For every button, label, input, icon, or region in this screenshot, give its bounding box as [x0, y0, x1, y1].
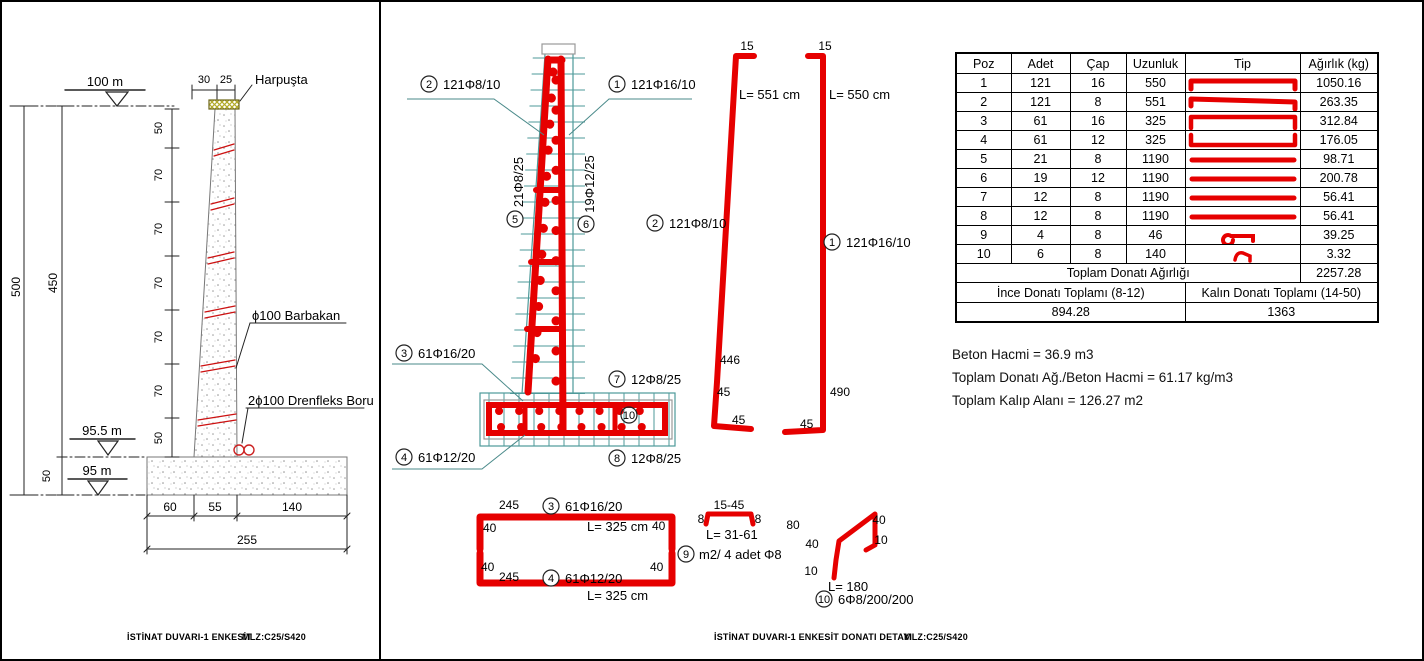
callout-8-text: 12Φ8/25: [631, 451, 681, 466]
bar1-length: L= 550 cm: [829, 87, 890, 102]
cell-adet: 6: [1011, 245, 1070, 264]
cell-tip-bar-hooks-down: [1185, 74, 1300, 93]
cell-agirlik: 98.71: [1300, 150, 1378, 169]
table-row: 1 121 16 550 1050.16: [956, 74, 1378, 93]
cell-poz: 8: [956, 207, 1011, 226]
harpusta-label: Harpuşta: [255, 72, 309, 87]
callout-3-rect-text: 61Φ16/20: [565, 499, 622, 514]
cell-cap: 8: [1070, 150, 1126, 169]
cell-tip-bar-slant-hooks: [1185, 93, 1300, 112]
cell-uzunluk: 46: [1126, 226, 1185, 245]
callout-2-mid-num: 2: [652, 218, 658, 230]
bar2-dim-45a: 45: [717, 385, 731, 399]
callout-10-num: 10: [818, 594, 830, 606]
callout-4-rect: 4 61Φ12/20: [543, 570, 622, 586]
cell-adet: 12: [1011, 207, 1070, 226]
bar2-hook-dim: 15: [740, 39, 754, 53]
tip-shape-zigzag-icon: [1187, 246, 1299, 263]
cell-poz: 9: [956, 226, 1011, 245]
callout-7-num: 7: [614, 374, 620, 386]
ladder-dim-0: 50: [153, 122, 165, 134]
callout-4-rect-text: 61Φ12/20: [565, 571, 622, 586]
bar2-dim-446: 446: [720, 353, 740, 367]
callout-2-top: 2 121Φ8/10: [421, 76, 500, 92]
tip-shape-straight-icon: [1187, 151, 1299, 168]
callout-3: 3 61Φ16/20: [396, 345, 475, 361]
concrete-stem: [194, 109, 237, 457]
cell-poz: 1: [956, 74, 1011, 93]
cell-agirlik: 39.25: [1300, 226, 1378, 245]
cell-cap: 12: [1070, 131, 1126, 150]
cell-agirlik: 3.32: [1300, 245, 1378, 264]
total-weight-label: Toplam Donatı Ağırlığı: [956, 264, 1300, 283]
rect3-dim-40l: 40: [483, 521, 497, 535]
cell-adet: 19: [1011, 169, 1070, 188]
rebar-schedule-table: Poz Adet Çap Uzunluk Tip Ağırlık (kg) 1 …: [955, 52, 1379, 323]
cell-agirlik: 56.41: [1300, 207, 1378, 226]
dim-50-foundation: 50: [41, 470, 53, 482]
table-row: 3 61 16 325 312.84: [956, 112, 1378, 131]
callout-7-text: 12Φ8/25: [631, 372, 681, 387]
cell-cap: 16: [1070, 74, 1126, 93]
table-subtotal-label-row: İnce Donatı Toplamı (8-12) Kalın Donatı …: [956, 283, 1378, 303]
cell-agirlik: 176.05: [1300, 131, 1378, 150]
callout-10-text: 6Φ8/200/200: [838, 592, 913, 607]
header-adet: Adet: [1011, 53, 1070, 74]
callout-7: 7 12Φ8/25: [609, 371, 681, 387]
cell-poz: 2: [956, 93, 1011, 112]
barbakan-label: ϕ100 Barbakan: [252, 308, 340, 323]
cell-agirlik: 1050.16: [1300, 74, 1378, 93]
elevation-top-label: 100 m: [87, 74, 123, 89]
footing-grid: [480, 393, 675, 446]
cell-agirlik: 200.78: [1300, 169, 1378, 188]
rect3-dim-40r: 40: [652, 519, 666, 533]
middle-section-drawing: 2 121Φ8/10 1 121Φ16/10 5 21Φ8/25 6 19Φ12…: [392, 39, 913, 607]
s10-dim-80: 80: [786, 518, 800, 532]
callout-1-num: 1: [614, 79, 620, 91]
rect4-length: L= 325 cm: [587, 588, 648, 603]
elevation-mid-label: 95.5 m: [82, 423, 122, 438]
cell-agirlik: 312.84: [1300, 112, 1378, 131]
tip-shape-bar-slant-hooks-icon: [1187, 94, 1299, 111]
cell-agirlik: 263.35: [1300, 93, 1378, 112]
cell-adet: 121: [1011, 74, 1070, 93]
header-cap: Çap: [1070, 53, 1126, 74]
s9-dim-l: 8: [698, 512, 705, 526]
dim-base-a: 60: [163, 500, 177, 514]
table-subtotal-value-row: 894.28 1363: [956, 303, 1378, 323]
tip-shape-straight-icon: [1187, 170, 1299, 187]
table-total-row: Toplam Donatı Ağırlığı 2257.28: [956, 264, 1378, 283]
callout-5: 5 21Φ8/25: [507, 157, 526, 227]
dim-top-b: 25: [220, 74, 232, 86]
dim-top-a: 30: [198, 74, 210, 86]
cell-adet: 61: [1011, 131, 1070, 150]
tip-shape-bar-hooks-down-icon: [1187, 75, 1299, 92]
cell-tip-straight: [1185, 169, 1300, 188]
table-header-row: Poz Adet Çap Uzunluk Tip Ağırlık (kg): [956, 53, 1378, 74]
cell-uzunluk: 551: [1126, 93, 1185, 112]
bar1-hook-dim: 15: [818, 39, 832, 53]
table-row: 9 4 8 46 39.25: [956, 226, 1378, 245]
callout-9-num: 9: [683, 549, 689, 561]
callout-6-num: 6: [583, 219, 589, 231]
s9-dim-r: 8: [755, 512, 762, 526]
dim-500: 500: [9, 277, 23, 297]
dim-base-total: 255: [237, 533, 257, 547]
drenfleks-label: 2ϕ100 Drenfleks Boru: [248, 393, 374, 408]
callout-1-top: 1 121Φ16/10: [609, 76, 696, 92]
bar2-dim-45b: 45: [732, 413, 746, 427]
ladder-dim-1: 70: [153, 169, 165, 181]
bar-shape-2: [714, 56, 754, 429]
callout-1-text: 121Φ16/10: [631, 77, 696, 92]
header-agirlik: Ağırlık (kg): [1300, 53, 1378, 74]
thick-rebar-value: 1363: [1185, 303, 1378, 323]
cell-agirlik: 56.41: [1300, 188, 1378, 207]
callout-3-num: 3: [401, 348, 407, 360]
cell-tip-zigzag: [1185, 245, 1300, 264]
cell-poz: 4: [956, 131, 1011, 150]
callout-2-mid-text: 121Φ8/10: [669, 216, 726, 231]
ladder-dim-2: 70: [153, 223, 165, 235]
total-weight-value: 2257.28: [1300, 264, 1378, 283]
bar-shape-10: [834, 514, 875, 578]
callout-10-footing-num: 10: [623, 410, 635, 422]
cell-uzunluk: 1190: [1126, 150, 1185, 169]
middle-panel-material: MLZ:C25/S420: [904, 632, 968, 642]
thick-rebar-label: Kalın Donatı Toplamı (14-50): [1185, 283, 1378, 303]
callout-9-text: m2/ 4 adet Φ8: [699, 547, 782, 562]
elevation-bot-label: 95 m: [83, 463, 112, 478]
tip-shape-straight-icon: [1187, 208, 1299, 225]
callout-4-rect-num: 4: [548, 573, 554, 585]
cell-cap: 12: [1070, 169, 1126, 188]
cell-cap: 16: [1070, 112, 1126, 131]
ladder-dim-3: 70: [153, 277, 165, 289]
note-concrete-volume: Beton Hacmi = 36.9 m3: [952, 347, 1093, 362]
middle-panel-title: İSTİNAT DUVARI-1 ENKESİT DONATI DETAYI: [714, 632, 912, 642]
cell-tip-straight: [1185, 188, 1300, 207]
table-row: 8 12 8 1190 56.41: [956, 207, 1378, 226]
table-row: 10 6 8 140 3.32: [956, 245, 1378, 264]
cell-uzunluk: 1190: [1126, 207, 1185, 226]
tip-shape-straight-icon: [1187, 189, 1299, 206]
cell-adet: 61: [1011, 112, 1070, 131]
s10-length: L= 180: [828, 579, 868, 594]
cell-adet: 121: [1011, 93, 1070, 112]
callout-2-text: 121Φ8/10: [443, 77, 500, 92]
header-poz: Poz: [956, 53, 1011, 74]
cell-poz: 7: [956, 188, 1011, 207]
table-row: 6 19 12 1190 200.78: [956, 169, 1378, 188]
cell-cap: 8: [1070, 245, 1126, 264]
bar2-length: L= 551 cm: [739, 87, 800, 102]
cell-uzunluk: 550: [1126, 74, 1185, 93]
note-formwork-area: Toplam Kalıp Alanı = 126.27 m2: [952, 393, 1143, 408]
tip-shape-u-open-bottom-icon: [1187, 113, 1299, 130]
cell-cap: 8: [1070, 207, 1126, 226]
cell-poz: 6: [956, 169, 1011, 188]
callout-4-num: 4: [401, 452, 407, 464]
ladder-dim-5: 70: [153, 385, 165, 397]
table-row: 7 12 8 1190 56.41: [956, 188, 1378, 207]
s10-dim-40r: 40: [872, 513, 886, 527]
cell-tip-u-open-top: [1185, 131, 1300, 150]
cell-adet: 4: [1011, 226, 1070, 245]
callout-9: 9 m2/ 4 adet Φ8: [678, 546, 782, 562]
bar-shape-9: [706, 514, 753, 524]
cell-poz: 3: [956, 112, 1011, 131]
s10-dim-10r: 10: [874, 533, 888, 547]
bar1-dim-490: 490: [830, 385, 850, 399]
callout-1-bar: 1 121Φ16/10: [824, 234, 911, 250]
cell-cap: 8: [1070, 188, 1126, 207]
drawing-sheet: 100 m 95.5 m 95 m Harpuşta ϕ100 Barbakan…: [0, 0, 1424, 661]
table-row: 2 121 8 551 263.35: [956, 93, 1378, 112]
thin-rebar-label: İnce Donatı Toplamı (8-12): [956, 283, 1185, 303]
cell-tip-straight: [1185, 150, 1300, 169]
callout-8: 8 12Φ8/25: [609, 450, 681, 466]
callout-4-text: 61Φ12/20: [418, 450, 475, 465]
cell-cap: 8: [1070, 226, 1126, 245]
cell-uzunluk: 1190: [1126, 188, 1185, 207]
callout-4: 4 61Φ12/20: [396, 449, 475, 465]
header-tip: Tip: [1185, 53, 1300, 74]
callout-10-footing: 10: [621, 407, 637, 423]
s9-dim-top: 15-45: [714, 498, 745, 512]
cell-tip-u-open-bottom: [1185, 112, 1300, 131]
bar-shape-1: [785, 56, 823, 432]
callout-3-rect: 3 61Φ16/20: [543, 498, 622, 514]
left-panel-material: MLZ:C25/S420: [242, 632, 306, 642]
cell-tip-straight: [1185, 207, 1300, 226]
rect4-dim-40r: 40: [650, 560, 664, 574]
callout-3-rect-num: 3: [548, 501, 554, 513]
callout-1-bar-text: 121Φ16/10: [846, 235, 911, 250]
thin-rebar-value: 894.28: [956, 303, 1185, 323]
table-row: 5 21 8 1190 98.71: [956, 150, 1378, 169]
tip-shape-u-open-top-icon: [1187, 132, 1299, 149]
rect3-dim-245: 245: [499, 498, 519, 512]
cell-adet: 21: [1011, 150, 1070, 169]
note-rebar-ratio: Toplam Donatı Ağ./Beton Hacmi = 61.17 kg…: [952, 370, 1233, 385]
dim-450: 450: [46, 273, 60, 293]
cell-poz: 10: [956, 245, 1011, 264]
left-section-drawing: 100 m 95.5 m 95 m Harpuşta ϕ100 Barbakan…: [9, 72, 374, 554]
harpusta-cap: [209, 100, 239, 109]
callout-2-mid: 2 121Φ8/10: [647, 215, 726, 231]
callout-5-text: 21Φ8/25: [511, 157, 526, 207]
rect4-dim-40l: 40: [481, 560, 495, 574]
cell-uzunluk: 140: [1126, 245, 1185, 264]
cell-tip-hook: [1185, 226, 1300, 245]
rect3-length: L= 325 cm: [587, 519, 648, 534]
callout-5-num: 5: [512, 214, 518, 226]
rect4-dim-245: 245: [499, 570, 519, 584]
bar1-dim-45: 45: [800, 417, 814, 431]
callout-1-bar-num: 1: [829, 237, 835, 249]
callout-3-text: 61Φ16/20: [418, 346, 475, 361]
dim-base-b: 55: [208, 500, 222, 514]
left-panel-title: İSTİNAT DUVARI-1 ENKESİT: [127, 632, 252, 642]
tip-shape-hook-icon: [1187, 227, 1299, 244]
table-row: 4 61 12 325 176.05: [956, 131, 1378, 150]
callout-2-num: 2: [426, 79, 432, 91]
ladder-dim-4: 70: [153, 331, 165, 343]
concrete-footing: [147, 457, 347, 495]
s10-dim-10l: 10: [804, 564, 818, 578]
callout-6-text: 19Φ12/25: [582, 155, 597, 212]
ladder-dim-6: 50: [153, 432, 165, 444]
cell-adet: 12: [1011, 188, 1070, 207]
cell-cap: 8: [1070, 93, 1126, 112]
cell-uzunluk: 325: [1126, 131, 1185, 150]
cell-uzunluk: 1190: [1126, 169, 1185, 188]
callout-8-num: 8: [614, 453, 620, 465]
s10-dim-40l: 40: [805, 537, 819, 551]
cell-uzunluk: 325: [1126, 112, 1185, 131]
cell-poz: 5: [956, 150, 1011, 169]
dim-base-c: 140: [282, 500, 302, 514]
header-uzunluk: Uzunluk: [1126, 53, 1185, 74]
s9-length: L= 31-61: [706, 527, 758, 542]
